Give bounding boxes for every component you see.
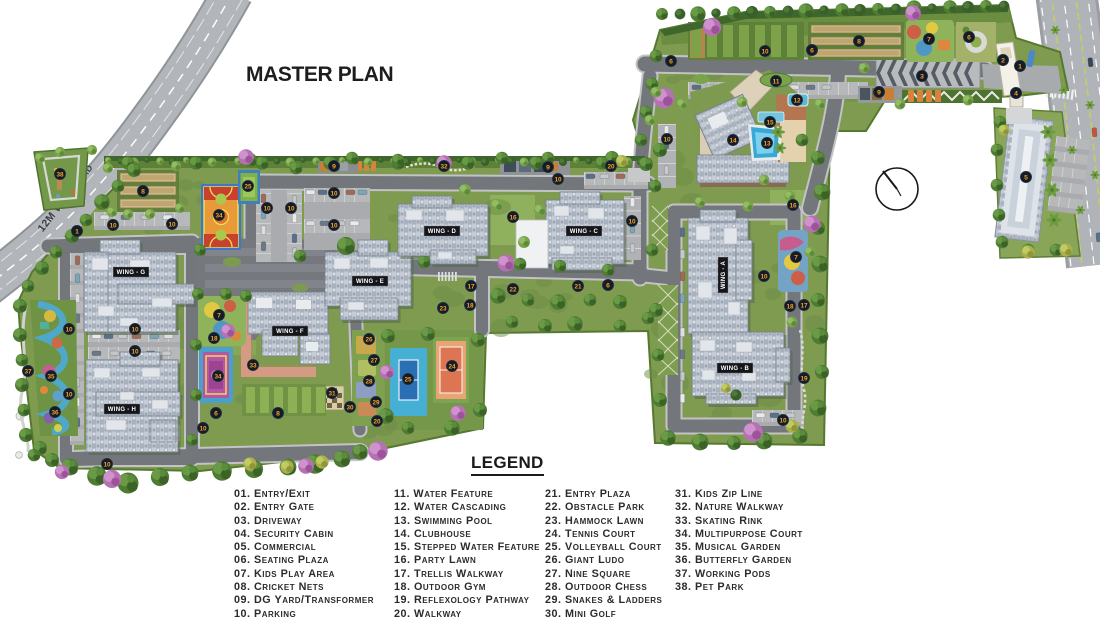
svg-text:7: 7 xyxy=(217,312,221,319)
svg-text:15: 15 xyxy=(766,119,774,126)
svg-text:26: 26 xyxy=(365,336,373,343)
svg-text:34: 34 xyxy=(214,373,222,380)
svg-text:37: 37 xyxy=(24,368,32,375)
svg-text:25: 25 xyxy=(244,183,252,190)
svg-text:10: 10 xyxy=(628,218,636,225)
svg-text:WING - C: WING - C xyxy=(570,229,599,235)
svg-text:22: 22 xyxy=(509,286,517,293)
svg-text:38: 38 xyxy=(56,171,64,178)
svg-text:10: 10 xyxy=(760,273,768,280)
svg-text:11: 11 xyxy=(773,78,780,85)
svg-text:6: 6 xyxy=(669,58,673,65)
svg-text:6: 6 xyxy=(606,282,610,289)
svg-text:9: 9 xyxy=(877,89,881,96)
svg-text:6: 6 xyxy=(810,47,814,54)
svg-text:12: 12 xyxy=(793,97,801,104)
svg-text:17: 17 xyxy=(467,283,475,290)
svg-text:27: 27 xyxy=(370,357,378,364)
svg-text:24: 24 xyxy=(448,363,456,370)
svg-text:21: 21 xyxy=(574,283,582,290)
svg-text:25: 25 xyxy=(404,376,412,383)
svg-text:1: 1 xyxy=(1018,63,1022,70)
svg-text:WING - G: WING - G xyxy=(117,270,146,276)
svg-text:17: 17 xyxy=(800,302,808,309)
svg-text:5: 5 xyxy=(1024,174,1028,181)
svg-text:18: 18 xyxy=(210,335,218,342)
svg-text:10: 10 xyxy=(330,190,338,197)
svg-text:10: 10 xyxy=(199,425,207,432)
svg-text:10: 10 xyxy=(330,222,338,229)
svg-text:14: 14 xyxy=(729,137,737,144)
svg-text:35: 35 xyxy=(47,373,55,380)
svg-text:10: 10 xyxy=(109,222,117,229)
svg-text:18: 18 xyxy=(786,303,794,310)
svg-text:29: 29 xyxy=(372,399,380,406)
svg-text:16: 16 xyxy=(509,214,517,221)
svg-text:8: 8 xyxy=(857,38,861,45)
svg-text:4: 4 xyxy=(1014,90,1018,97)
svg-text:20: 20 xyxy=(373,418,381,425)
svg-text:7: 7 xyxy=(794,254,798,261)
svg-text:23: 23 xyxy=(439,305,447,312)
svg-text:28: 28 xyxy=(365,378,373,385)
svg-text:WING - B: WING - B xyxy=(721,366,750,372)
svg-text:3: 3 xyxy=(920,73,924,80)
svg-text:32: 32 xyxy=(440,163,448,170)
svg-text:10: 10 xyxy=(168,221,176,228)
svg-text:9: 9 xyxy=(332,163,336,170)
svg-text:36: 36 xyxy=(51,409,59,416)
svg-text:WING - F: WING - F xyxy=(276,329,304,335)
svg-text:6: 6 xyxy=(967,34,971,41)
svg-text:10: 10 xyxy=(287,205,295,212)
svg-text:7: 7 xyxy=(927,36,931,43)
svg-text:30: 30 xyxy=(346,404,354,411)
svg-text:10: 10 xyxy=(131,348,139,355)
svg-text:9: 9 xyxy=(546,164,550,171)
svg-text:WING - A: WING - A xyxy=(721,261,727,290)
svg-text:16: 16 xyxy=(789,202,797,209)
svg-text:10: 10 xyxy=(554,176,562,183)
svg-text:31: 31 xyxy=(328,390,336,397)
svg-text:10: 10 xyxy=(761,48,769,55)
svg-text:10: 10 xyxy=(103,461,111,468)
svg-text:10: 10 xyxy=(663,136,671,143)
svg-text:20: 20 xyxy=(607,163,615,170)
svg-text:10: 10 xyxy=(263,205,271,212)
svg-text:34: 34 xyxy=(215,212,223,219)
svg-text:8: 8 xyxy=(276,410,280,417)
svg-text:18: 18 xyxy=(466,302,474,309)
svg-text:10: 10 xyxy=(131,326,139,333)
svg-text:6: 6 xyxy=(214,410,218,417)
svg-text:13: 13 xyxy=(763,140,771,147)
svg-text:WING - D: WING - D xyxy=(428,229,457,235)
svg-text:WING - E: WING - E xyxy=(356,279,384,285)
svg-text:2: 2 xyxy=(1001,57,1005,64)
svg-text:19: 19 xyxy=(800,375,808,382)
svg-text:1: 1 xyxy=(75,228,79,235)
svg-text:WING - H: WING - H xyxy=(108,407,136,413)
svg-text:8: 8 xyxy=(141,188,145,195)
svg-text:10: 10 xyxy=(65,326,73,333)
svg-text:10: 10 xyxy=(65,391,73,398)
svg-text:10: 10 xyxy=(779,417,787,424)
svg-text:33: 33 xyxy=(249,362,257,369)
